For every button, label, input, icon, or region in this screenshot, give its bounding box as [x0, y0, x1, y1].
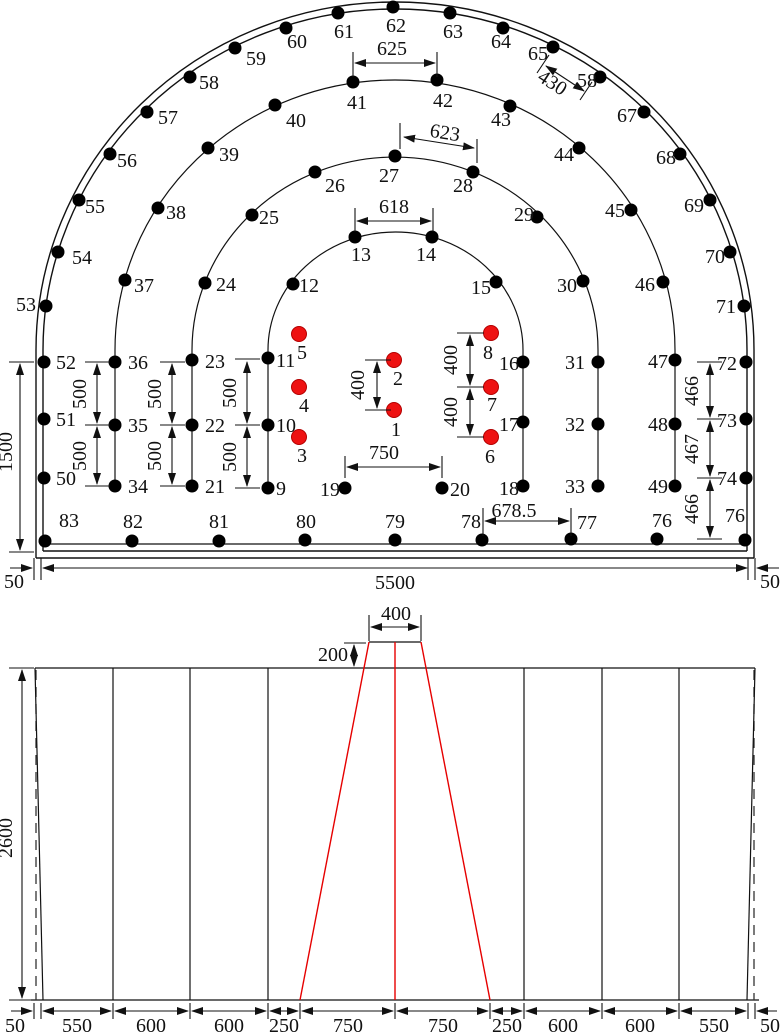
hole-24 — [199, 277, 212, 290]
hole-82 — [126, 535, 139, 548]
hole-label-35: 35 — [128, 415, 148, 437]
hole-label-26: 26 — [325, 175, 345, 197]
blast-pattern-svg: 1234567891011121314151617181920212223242… — [0, 0, 784, 1036]
hole-47 — [669, 354, 682, 367]
hole-label-23: 23 — [205, 351, 225, 373]
hole-label-70: 70 — [705, 246, 725, 268]
hole-label-80: 80 — [296, 511, 316, 533]
dim-label-550: 550 — [699, 1015, 729, 1036]
hole-56 — [104, 148, 117, 161]
hole-label-30: 30 — [557, 275, 577, 297]
hole-9 — [262, 482, 275, 495]
hole-79 — [389, 534, 402, 547]
hole-label-20: 20 — [450, 479, 470, 501]
hole-54 — [52, 246, 65, 259]
dim-label-400: 400 — [440, 345, 462, 375]
hole-46 — [657, 276, 670, 289]
hole-27 — [389, 150, 402, 163]
hole-label-17: 17 — [499, 414, 519, 436]
hole-40 — [269, 99, 282, 112]
hole-25 — [246, 209, 259, 222]
hole-label-24: 24 — [216, 274, 236, 296]
hole-label-39: 39 — [219, 144, 239, 166]
dim-label-500: 500 — [219, 442, 241, 472]
hole-label-56: 56 — [117, 150, 137, 172]
dim-label-200: 200 — [318, 644, 348, 666]
dim-label-430: 430 — [534, 66, 571, 101]
cut-hole-5 — [292, 327, 307, 342]
hole-label-60: 60 — [287, 31, 307, 53]
hole-label-38: 38 — [166, 202, 186, 224]
hole-label-61: 61 — [334, 21, 354, 43]
hole-label-15: 15 — [471, 277, 491, 299]
hole-label-49: 49 — [648, 476, 668, 498]
hole-label-59: 59 — [246, 48, 266, 70]
hole-62 — [387, 1, 400, 14]
hole-21 — [186, 480, 199, 493]
cut-hole-8 — [484, 326, 499, 341]
hole-30 — [577, 275, 590, 288]
hole-45 — [625, 204, 638, 217]
hole-label-18: 18 — [499, 478, 519, 500]
hole-label-3: 3 — [297, 445, 307, 467]
hole-label-64: 64 — [491, 31, 511, 53]
dim-label-50: 50 — [5, 1015, 25, 1036]
hole-10 — [262, 419, 275, 432]
dim-label-466: 466 — [681, 494, 703, 524]
hole-label-76: 76 — [725, 505, 745, 527]
hole-label-27: 27 — [379, 165, 399, 187]
hole-label-52: 52 — [56, 352, 76, 374]
hole-label-68: 68 — [656, 147, 676, 169]
cut-left-hole-red — [300, 642, 369, 1000]
dim-label-1500: 1500 — [0, 432, 17, 472]
hole-37 — [119, 274, 132, 287]
hole-69 — [704, 194, 717, 207]
dim-label-50: 50 — [760, 1015, 780, 1036]
hole-65 — [547, 41, 560, 54]
hole-78 — [476, 534, 489, 547]
hole-label-41: 41 — [347, 92, 367, 114]
hole-label-12: 12 — [299, 275, 319, 297]
hole-label-33: 33 — [565, 476, 585, 498]
cut-hole-4 — [292, 380, 307, 395]
hole-label-62: 62 — [386, 15, 406, 37]
hole-label-14: 14 — [416, 244, 436, 266]
hole-label-21: 21 — [205, 476, 225, 498]
hole-label-8: 8 — [483, 342, 493, 364]
hole-44 — [573, 142, 586, 155]
hole-label-13: 13 — [351, 244, 371, 266]
dim-label-623: 623 — [428, 120, 461, 146]
dim-label-2600: 2600 — [0, 818, 17, 858]
hole-41 — [347, 76, 360, 89]
dim-label-600: 600 — [136, 1015, 166, 1036]
hole-label-11: 11 — [276, 350, 295, 372]
hole-50 — [38, 472, 51, 485]
dim-label-500: 500 — [69, 441, 91, 471]
hole-55 — [73, 194, 86, 207]
dim-label-500: 500 — [144, 441, 166, 471]
dim-label-750: 750 — [369, 442, 399, 464]
hole-14 — [426, 231, 439, 244]
hole-39 — [202, 142, 215, 155]
hole-label-25: 25 — [259, 207, 279, 229]
dim-label-750: 750 — [333, 1015, 363, 1036]
hole-51 — [38, 413, 51, 426]
hole-32 — [592, 418, 605, 431]
hole-73 — [740, 413, 753, 426]
dim-label-500: 500 — [69, 379, 91, 409]
hole-31 — [592, 356, 605, 369]
section-diagram: 4002002600505506006002507507502506006005… — [0, 603, 780, 1036]
hole-label-5: 5 — [297, 342, 307, 364]
hole-label-28: 28 — [453, 175, 473, 197]
hole-34 — [109, 480, 122, 493]
hole-label-9: 9 — [276, 478, 286, 500]
hole-label-76: 76 — [652, 510, 672, 532]
dim-label-600: 600 — [625, 1015, 655, 1036]
hole-63 — [444, 7, 457, 20]
dim-label-250: 250 — [492, 1015, 522, 1036]
hole-48 — [669, 418, 682, 431]
hole-70 — [724, 246, 737, 259]
dim-label-750: 750 — [428, 1015, 458, 1036]
hole-15 — [490, 276, 503, 289]
hole-label-16: 16 — [499, 353, 519, 375]
hole-label-34: 34 — [128, 476, 148, 498]
hole-label-77: 77 — [577, 512, 597, 534]
hole-72 — [740, 356, 753, 369]
hole-23 — [186, 354, 199, 367]
dim-label-466: 466 — [681, 376, 703, 406]
dim-label-500: 500 — [144, 379, 166, 409]
dim-label-400: 400 — [440, 397, 462, 427]
face-diagram: 1234567891011121314151617181920212223242… — [0, 1, 780, 595]
hole-label-2: 2 — [393, 368, 403, 390]
hole-label-6: 6 — [485, 446, 495, 468]
cut-hole-7 — [484, 380, 499, 395]
hole-label-47: 47 — [648, 351, 668, 373]
hole-label-71: 71 — [716, 296, 736, 318]
hole-label-67: 67 — [617, 105, 637, 127]
blast-pattern-figure: 1234567891011121314151617181920212223242… — [0, 0, 784, 1036]
dim-label-400: 400 — [347, 370, 369, 400]
hole-52 — [38, 356, 51, 369]
hole-label-29: 29 — [514, 204, 534, 226]
hole-38 — [152, 202, 165, 215]
hole-label-69: 69 — [684, 195, 704, 217]
hole-label-78: 78 — [461, 511, 481, 533]
hole-76 — [739, 534, 752, 547]
dim-label-250: 250 — [269, 1015, 299, 1036]
hole-35 — [109, 419, 122, 432]
hole-22 — [186, 419, 199, 432]
hole-label-51: 51 — [56, 409, 76, 431]
hole-label-72: 72 — [717, 353, 737, 375]
hole-label-32: 32 — [565, 414, 585, 436]
hole-label-74: 74 — [717, 468, 737, 490]
hole-label-46: 46 — [635, 274, 655, 296]
hole-11 — [262, 352, 275, 365]
hole-label-42: 42 — [433, 90, 453, 112]
dim-label-50: 50 — [760, 571, 780, 593]
face-holes-layer: 1234567891011121314151617181920212223242… — [16, 1, 753, 548]
dim-label-625: 625 — [377, 38, 407, 60]
hole-label-57: 57 — [158, 107, 178, 129]
hole-57 — [141, 106, 154, 119]
hole-59 — [229, 42, 242, 55]
dim-label-467: 467 — [681, 434, 703, 464]
dim-label-618: 618 — [379, 196, 409, 218]
hole-67 — [638, 106, 651, 119]
hole-58 — [184, 71, 197, 84]
hole-label-22: 22 — [205, 415, 225, 437]
dim-label-550: 550 — [62, 1015, 92, 1036]
hole-label-43: 43 — [491, 109, 511, 131]
hole-76 — [651, 533, 664, 546]
dim-label-50: 50 — [4, 571, 24, 593]
hole-label-40: 40 — [286, 110, 306, 132]
hole-61 — [332, 7, 345, 20]
hole-label-44: 44 — [554, 144, 574, 166]
hole-label-79: 79 — [385, 511, 405, 533]
hole-label-45: 45 — [605, 200, 625, 222]
hole-label-1: 1 — [391, 419, 401, 441]
hole-label-10: 10 — [276, 415, 296, 437]
hole-20 — [436, 482, 449, 495]
hole-33 — [592, 480, 605, 493]
dim-label-500: 500 — [219, 378, 241, 408]
hole-19 — [339, 482, 352, 495]
dim-label-600: 600 — [214, 1015, 244, 1036]
hole-label-58: 58 — [199, 72, 219, 94]
hole-label-4: 4 — [299, 395, 309, 417]
hole-74 — [740, 472, 753, 485]
dim-label-600: 600 — [548, 1015, 578, 1036]
hole-label-83: 83 — [59, 510, 79, 532]
dim-label-400: 400 — [381, 603, 411, 625]
hole-36 — [109, 356, 122, 369]
hole-label-37: 37 — [134, 275, 154, 297]
hole-label-82: 82 — [123, 511, 143, 533]
hole-53 — [40, 300, 53, 313]
cut-right-hole-red — [421, 642, 490, 1000]
dim-label-5500: 5500 — [375, 572, 415, 594]
hole-83 — [39, 535, 52, 548]
dim-label-678.5: 678.5 — [492, 500, 537, 522]
hole-label-54: 54 — [72, 247, 92, 269]
hole-label-19: 19 — [320, 479, 340, 501]
hole-26 — [309, 166, 322, 179]
hole-label-48: 48 — [648, 414, 668, 436]
hole-81 — [213, 535, 226, 548]
cut-hole-6 — [484, 430, 499, 445]
hole-label-53: 53 — [16, 294, 36, 316]
hole-label-31: 31 — [565, 352, 585, 374]
hole-12 — [287, 278, 300, 291]
hole-80 — [299, 534, 312, 547]
hole-label-81: 81 — [209, 511, 229, 533]
hole-49 — [669, 480, 682, 493]
hole-13 — [349, 231, 362, 244]
hole-label-36: 36 — [128, 352, 148, 374]
hole-label-63: 63 — [443, 21, 463, 43]
hole-71 — [738, 300, 751, 313]
hole-label-7: 7 — [487, 394, 497, 416]
hole-label-55: 55 — [85, 196, 105, 218]
hole-label-73: 73 — [717, 410, 737, 432]
